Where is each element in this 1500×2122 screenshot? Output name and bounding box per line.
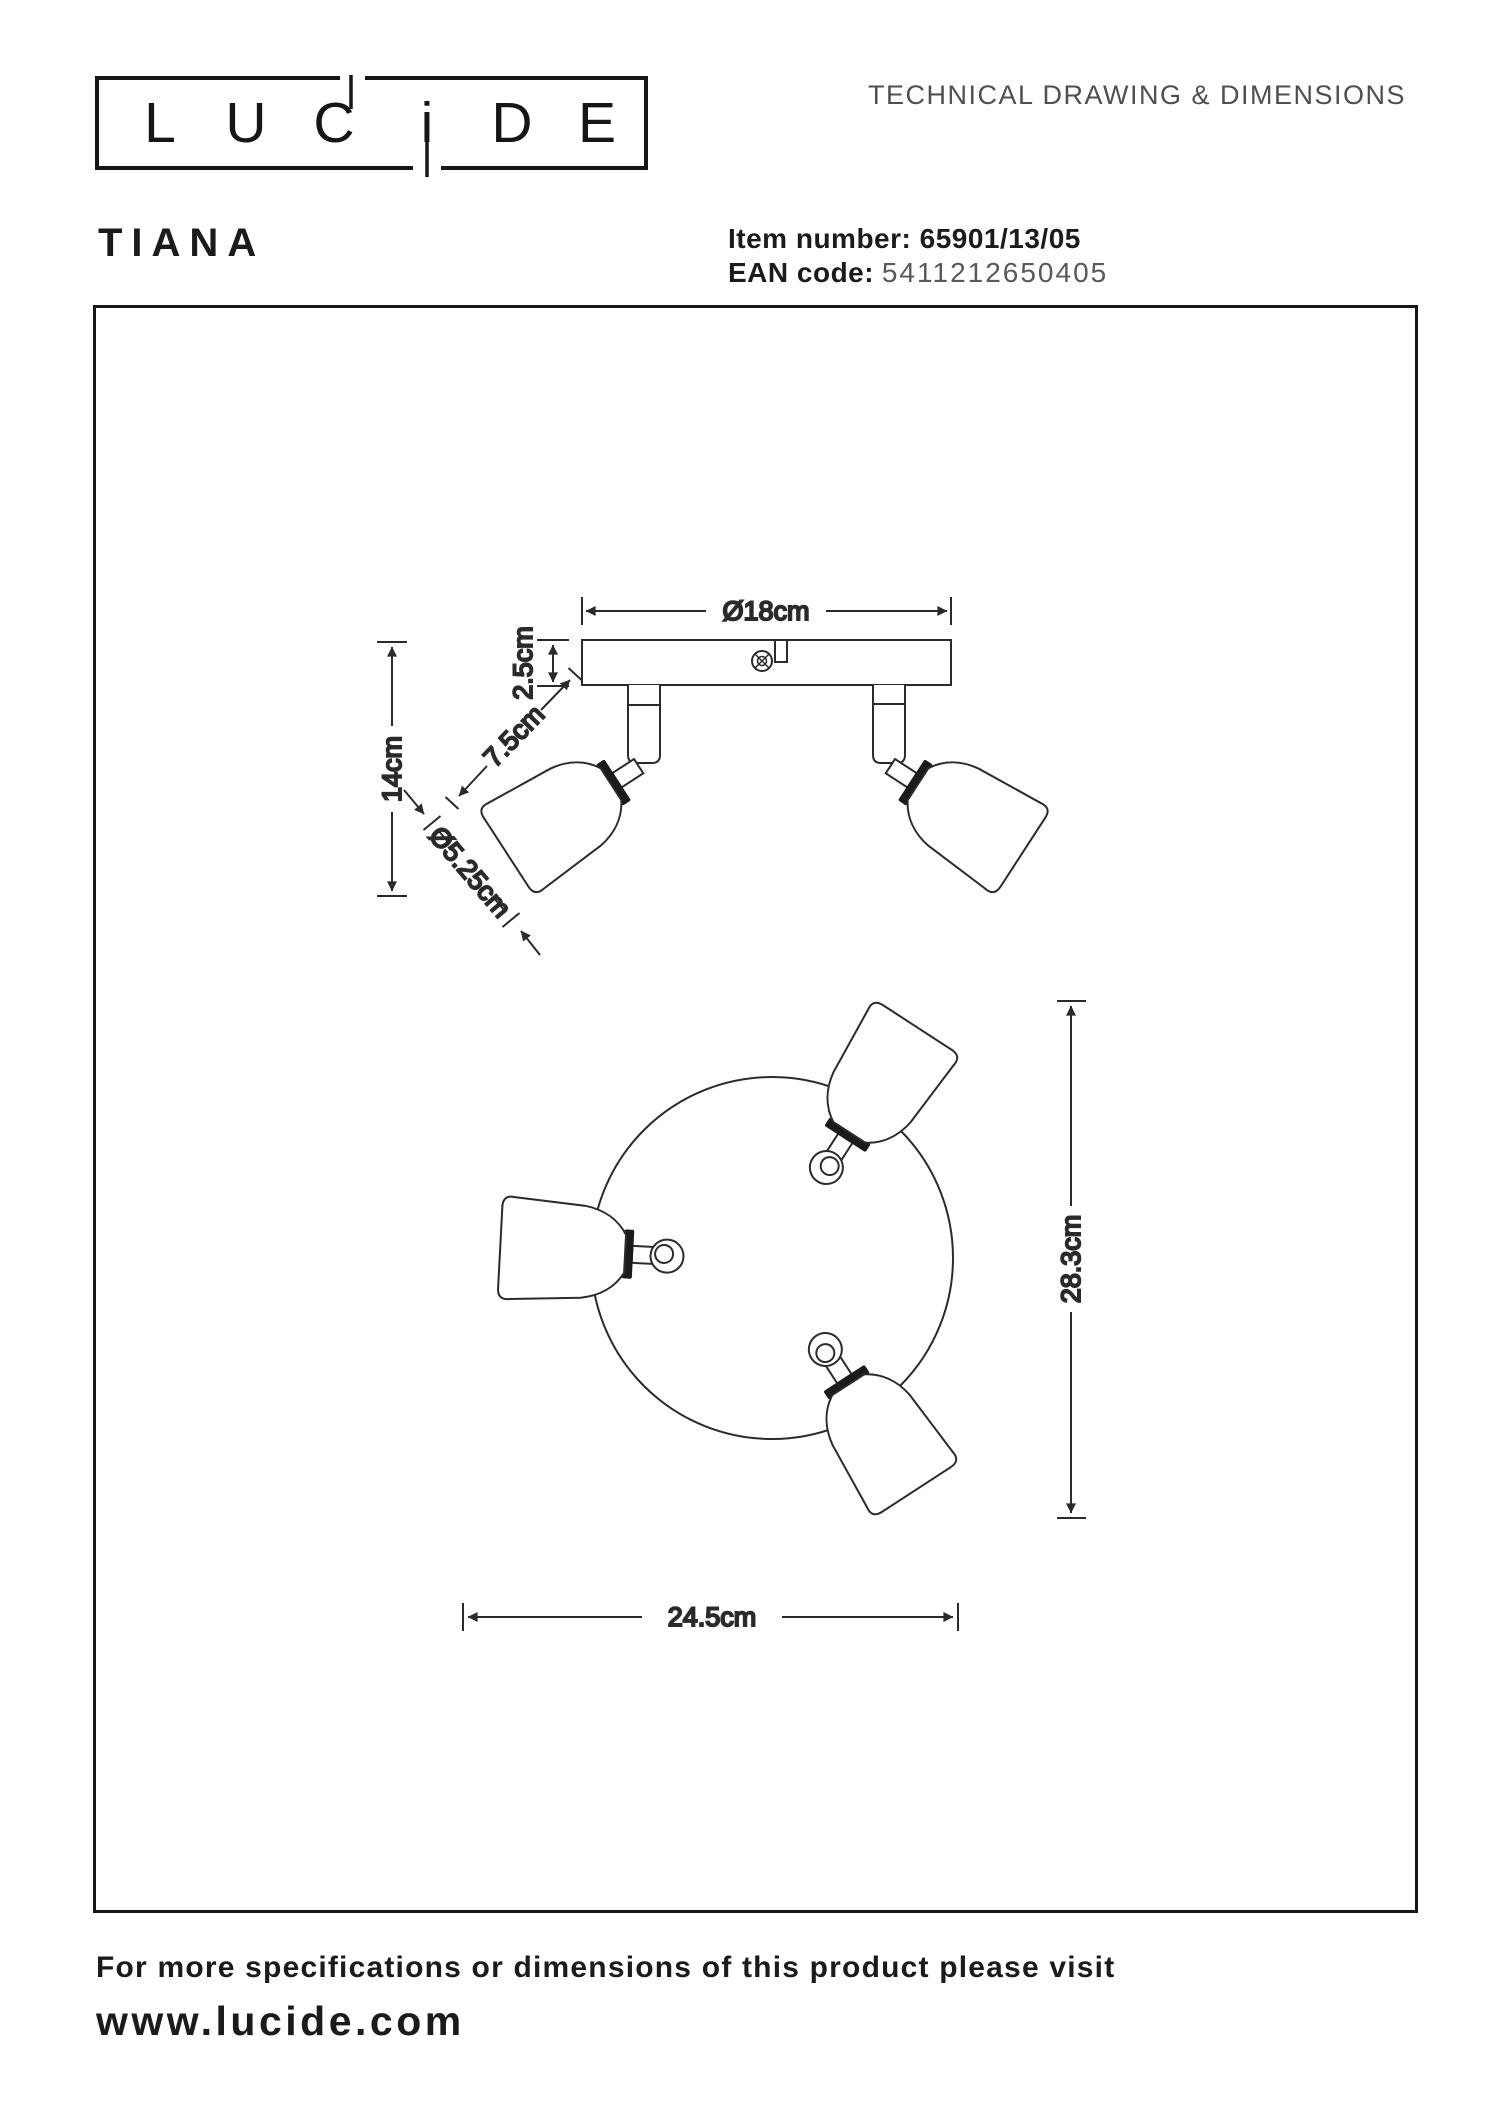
logo-letters: L U C i D E <box>144 91 616 155</box>
logo-letter: i <box>421 91 434 155</box>
logo-letter: C <box>313 91 354 155</box>
item-number-line: Item number: 65901/13/05 <box>728 222 1108 255</box>
logo-letter: U <box>225 91 266 155</box>
footer-note: For more specifications or dimensions of… <box>96 1951 1115 1985</box>
ean-label: EAN code: <box>728 257 874 288</box>
footer-url: www.lucide.com <box>96 1998 465 2045</box>
product-name: TIANA <box>98 221 265 266</box>
drawing-frame <box>93 305 1418 1913</box>
product-codes: Item number: 65901/13/05 EAN code: 54112… <box>728 222 1108 289</box>
logo-letter: L <box>144 91 176 155</box>
ean-line: EAN code: 5411212650405 <box>728 256 1108 289</box>
document-title: TECHNICAL DRAWING & DIMENSIONS <box>868 80 1406 111</box>
page: { "header": { "doc_title": "TECHNICAL DR… <box>0 0 1500 2122</box>
ean-value: 5411212650405 <box>882 257 1108 288</box>
brand-logo: L U C i D E <box>97 70 646 177</box>
logo-letter: D <box>491 91 532 155</box>
logo-frame <box>97 78 646 168</box>
item-number-value: 65901/13/05 <box>920 223 1081 254</box>
item-number-label: Item number: <box>728 223 911 254</box>
logo-frame-gap-bottom <box>413 160 441 174</box>
logo-frame-gap-top <box>340 70 365 84</box>
logo-letter: E <box>578 91 616 155</box>
